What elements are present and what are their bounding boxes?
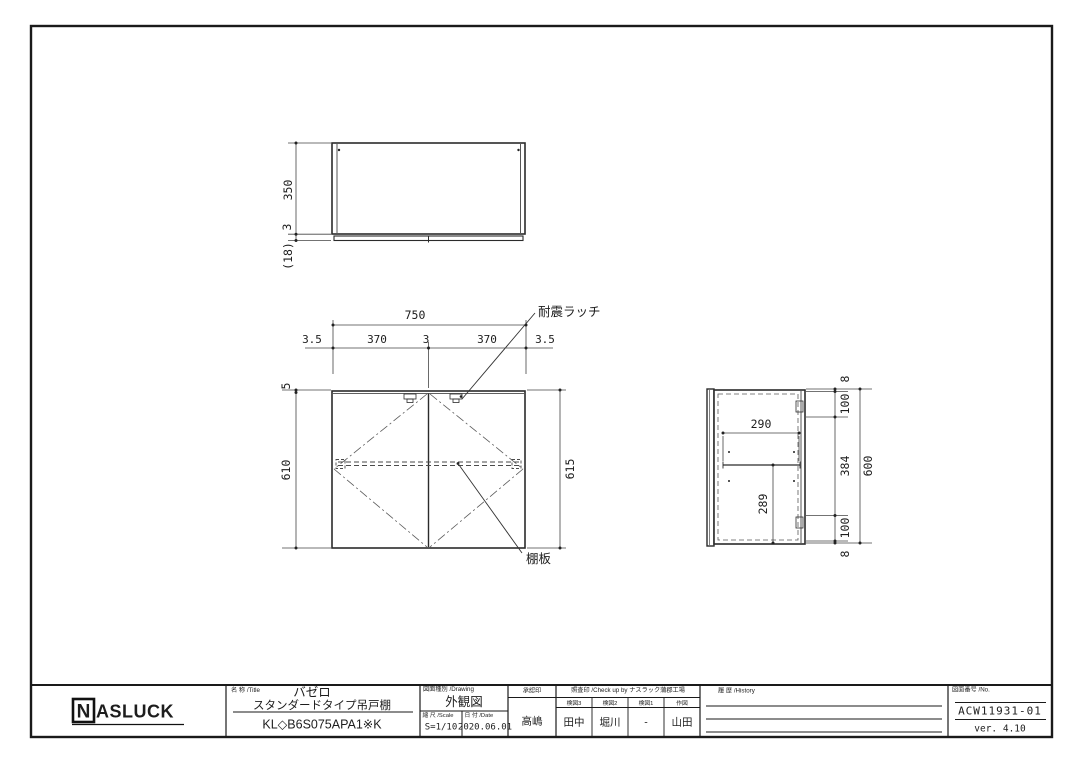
product-name: スタンダードタイプ吊戸棚	[253, 698, 391, 712]
nasluck-logo: N ASLUCK	[72, 699, 184, 725]
dim-top-depth: 350	[281, 180, 295, 201]
drawing-type-cell: 図面種別 /Drawing 外観図 縮 尺 /Scale S=1/10 日 付 …	[420, 685, 512, 736]
scale-value: S=1/10	[425, 723, 458, 733]
title-cell: 名 称 /Title バゼロ スタンダードタイプ吊戸棚 KL◇B6S075APA…	[231, 686, 413, 732]
approval-name: 高嶋	[522, 715, 543, 728]
drawing-sheet: 350 3 (18) 耐	[0, 0, 1080, 764]
dim-side-shelf-height: 289	[756, 494, 770, 515]
front-view-right-dimension	[527, 390, 566, 548]
logo-letters-asluck: ASLUCK	[96, 702, 174, 722]
date-value: 2020.06.01	[458, 723, 512, 733]
date-label: 日 付 /Date	[465, 711, 494, 719]
drawing-no-value: ACW11931-01	[958, 705, 1042, 718]
dim-seg-4: 370	[477, 333, 497, 346]
check-name-2: 堀川	[600, 717, 621, 729]
dim-front-door-gap: 5	[279, 383, 293, 390]
dim-chain-4: 100	[838, 518, 852, 539]
dim-top-door-thickness: (18)	[281, 242, 295, 270]
dim-front-door-height: 610	[279, 460, 293, 481]
check-col-label-2: 検図2	[603, 699, 618, 707]
approval-label: 承認印	[523, 687, 542, 695]
check-name-3: -	[644, 717, 648, 729]
history-label: 履 歴 /History	[718, 688, 756, 695]
dim-side-overall-height: 600	[861, 456, 875, 477]
series-name: バゼロ	[293, 686, 331, 700]
shelf-label: 棚板	[526, 551, 552, 566]
approval-cell: 承認印 高嶋	[508, 687, 556, 728]
dim-front-width: 750	[405, 308, 426, 322]
title-block: N ASLUCK 名 称 /Title バゼロ スタンダードタイプ吊戸棚 KL◇…	[31, 685, 1052, 736]
dim-seg-5: 3.5	[535, 333, 555, 346]
drawing-no-label: 図面番号 /No.	[952, 687, 990, 694]
front-view-top-dimensions	[305, 320, 553, 388]
front-view: 耐震ラッチ 棚板 750 3.5 370 3 370 3.5 5	[279, 305, 601, 566]
dim-seg-1: 3.5	[302, 333, 322, 346]
scale-label: 縮 尺 /Scale	[423, 711, 454, 719]
checkup-label: 照査印 /Check up by ナスラック蒲郡工場	[571, 686, 685, 694]
drawing-no-cell: 図面番号 /No. ACW11931-01 ver. 4.10	[952, 687, 1046, 735]
dim-chain-2: 100	[838, 394, 852, 415]
history-cell: 履 歴 /History	[706, 688, 942, 733]
drawing-type-label: 図面種別 /Drawing	[423, 685, 474, 693]
latch-label: 耐震ラッチ	[538, 305, 601, 319]
check-col-label-1: 検図3	[567, 699, 582, 707]
dim-chain-1: 8	[838, 375, 852, 382]
dim-chain-5: 8	[838, 550, 852, 557]
drawing-type-value: 外観図	[445, 695, 483, 709]
dim-seg-2: 370	[367, 333, 387, 346]
version-value: ver. 4.10	[974, 724, 1026, 735]
page-border	[31, 26, 1052, 737]
dim-chain-3: 384	[838, 456, 852, 477]
check-col-label-3: 検図1	[639, 699, 654, 707]
dim-front-carcass-height: 615	[563, 459, 577, 480]
logo-letter-n: N	[77, 702, 91, 723]
top-view: 350 3 (18)	[280, 142, 525, 270]
check-name-1: 田中	[564, 716, 585, 729]
side-view: 290 289 8 100 384 100 8 600	[707, 375, 875, 557]
check-col-label-4: 作図	[676, 699, 688, 707]
cad-drawing: 350 3 (18) 耐	[0, 0, 1080, 764]
dim-top-gap: 3	[280, 223, 294, 230]
name-label: 名 称 /Title	[231, 686, 261, 694]
check-name-4: 山田	[672, 717, 693, 729]
dim-side-shelf-depth: 290	[751, 417, 772, 431]
checkup-block: 照査印 /Check up by ナスラック蒲郡工場 検図3 検図2 検図1 作…	[556, 686, 700, 736]
model-number: KL◇B6S075APA1※K	[262, 718, 382, 732]
dim-seg-3: 3	[423, 333, 430, 346]
latch-leader-line	[462, 313, 535, 399]
